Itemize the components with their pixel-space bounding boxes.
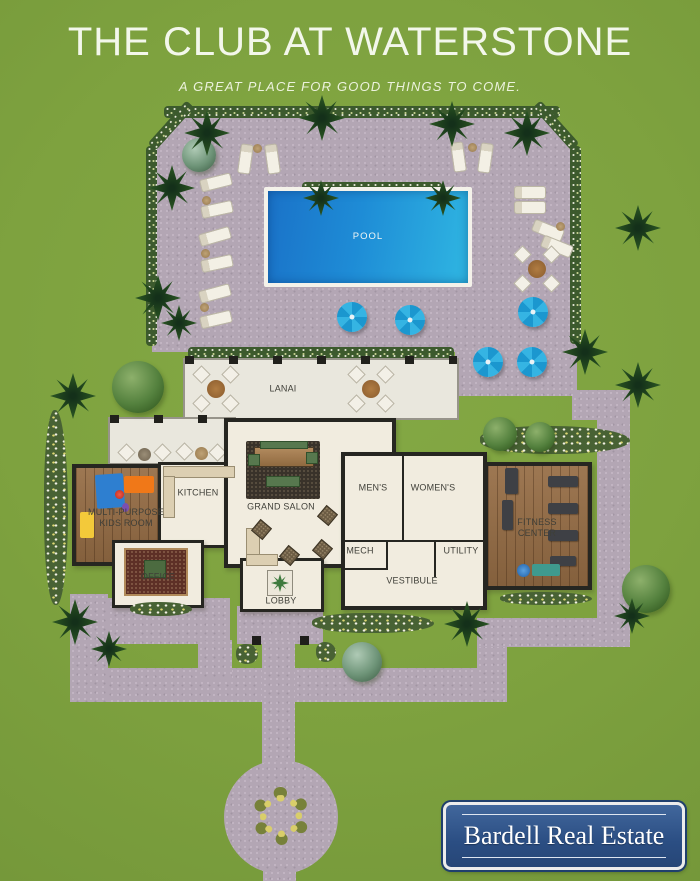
- salon-coffee-table: [266, 476, 300, 487]
- walkway-main-horizontal: [85, 668, 507, 702]
- interior-wall: [344, 568, 388, 570]
- table-set: [514, 246, 560, 292]
- walkway-deck-stub: [572, 390, 630, 420]
- salon-side-table: [306, 452, 318, 464]
- patio-umbrella-icon: [517, 347, 547, 377]
- interior-wall: [386, 542, 388, 568]
- shrub-icon: [342, 642, 382, 682]
- lobby-column: [252, 636, 261, 645]
- play-mat-orange: [124, 476, 154, 493]
- palm-tree-icon: [615, 205, 661, 251]
- office-label: OFFICE: [141, 571, 175, 582]
- site-plan: THE CLUB AT WATERSTONE A GREAT PLACE FOR…: [0, 0, 700, 881]
- porch-seating: [116, 440, 226, 464]
- weight-rack: [505, 468, 518, 494]
- exercise-ball: [517, 564, 530, 577]
- vestibule-label: VESTIBULE: [386, 575, 437, 586]
- bardell-logo: Bardell Real Estate: [443, 802, 685, 870]
- pool-label: POOL: [353, 231, 383, 243]
- shrub-icon: [112, 361, 164, 413]
- garden-south-strip: [312, 613, 434, 633]
- shrub-icon: [525, 422, 555, 452]
- side-table: [200, 303, 209, 312]
- interior-wall: [402, 455, 404, 540]
- flower-bush: [316, 642, 336, 662]
- walkway-bottom-stub: [263, 870, 296, 881]
- walkway-office-descender: [198, 640, 232, 678]
- kids-room-label: MULTI-PURPOSE KIDS ROOM: [80, 507, 172, 530]
- pool-lounger: [514, 186, 546, 199]
- treadmill: [548, 503, 578, 514]
- flower-wreath-icon: [252, 787, 310, 845]
- garden-left-strip: [44, 410, 68, 605]
- side-table: [202, 196, 211, 205]
- lanai-colonnade: [185, 356, 457, 364]
- hedge-deck-top: [164, 106, 560, 118]
- lobby-label: LOBBY: [265, 595, 296, 606]
- patio-umbrella-icon: [337, 302, 367, 332]
- salon-sofa: [254, 447, 314, 467]
- utility-label: UTILITY: [444, 545, 479, 556]
- patio-umbrella-icon: [518, 297, 548, 327]
- lobby-medallion: [267, 570, 293, 596]
- shrub-icon: [622, 565, 670, 613]
- interior-wall: [344, 540, 484, 542]
- garden-fitness-south: [500, 592, 592, 605]
- lobby-column: [300, 636, 309, 645]
- exercise-mat: [532, 564, 560, 576]
- garden-office-south: [130, 602, 192, 616]
- page-title: THE CLUB AT WATERSTONE: [0, 20, 700, 65]
- pool-lounger: [514, 201, 546, 214]
- side-table: [201, 249, 210, 258]
- treadmill: [548, 476, 578, 487]
- fitness-label: FITNESS CENTER: [510, 517, 564, 540]
- mens-label: MEN'S: [359, 482, 388, 493]
- side-table: [556, 222, 565, 231]
- kitchen-island: [246, 554, 278, 566]
- patio-umbrella-icon: [395, 305, 425, 335]
- side-table: [253, 144, 262, 153]
- walkway-central: [262, 640, 295, 770]
- bardell-logo-text: Bardell Real Estate: [464, 821, 665, 851]
- play-ball-red: [115, 490, 124, 499]
- table-set: [193, 366, 239, 412]
- patio-umbrella-icon: [473, 347, 503, 377]
- page-subtitle: A GREAT PLACE FOR GOOD THINGS TO COME.: [0, 79, 700, 94]
- porch-colonnade: [110, 415, 234, 423]
- hedge-deck-left: [146, 146, 157, 346]
- interior-wall: [434, 542, 436, 577]
- table-set: [348, 366, 394, 412]
- flower-bush: [236, 644, 258, 664]
- grand-salon-label: GRAND SALON: [247, 501, 315, 512]
- side-table: [468, 143, 477, 152]
- lanai-label: LANAI: [269, 383, 296, 394]
- mech-label: MECH: [346, 545, 373, 556]
- salon-table: [260, 441, 308, 449]
- kitchen-label: KITCHEN: [178, 487, 219, 498]
- shrub-icon: [483, 417, 517, 451]
- salon-side-table: [248, 454, 260, 466]
- womens-label: WOMEN'S: [411, 482, 456, 493]
